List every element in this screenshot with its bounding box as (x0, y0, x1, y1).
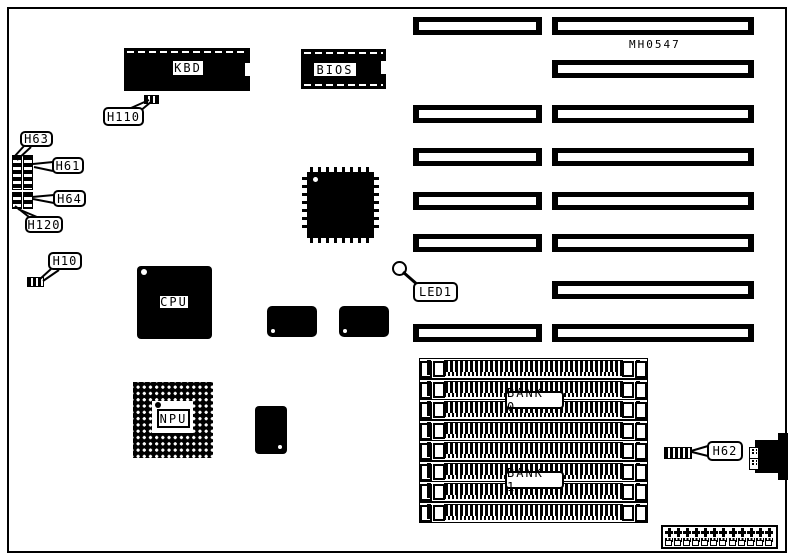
h110-pin-header (144, 95, 159, 104)
isa-slot-left-6 (413, 324, 542, 342)
ic-chip-3 (255, 406, 287, 454)
isa-slot-right-8 (552, 324, 754, 342)
power-pin-8 (729, 528, 738, 546)
isa-slot-right-4 (552, 148, 754, 166)
power-pin-6 (710, 528, 719, 546)
qfp-pin1-dot (313, 177, 318, 182)
simm-socket-1 (419, 358, 648, 379)
board-id-label: MH0547 (629, 38, 681, 51)
callout-h64: H64 (53, 190, 86, 207)
isa-slot-left-2 (413, 105, 542, 123)
power-pin-1 (665, 528, 674, 546)
power-pin-12 (765, 528, 774, 546)
isa-slot-left-4 (413, 192, 542, 210)
callout-h61: H61 (52, 157, 84, 174)
motherboard-diagram: MH0547 KBD BIOS H110 H63 H61 H64 H120 H1… (0, 0, 791, 559)
callout-h120: H120 (25, 216, 63, 233)
keyboard-connector-bracket (778, 433, 788, 480)
power-pin-7 (719, 528, 728, 546)
cpu-pin1-dot (141, 269, 147, 275)
h10-pin-header (27, 277, 44, 287)
npu-pin1-dot (155, 402, 161, 408)
led1-indicator (392, 261, 407, 276)
kbd-chip-notch (245, 63, 250, 76)
power-pin-3 (683, 528, 692, 546)
h62-pin-header (664, 447, 692, 459)
cpu-chip-label: CPU (159, 295, 189, 309)
h120-pin-header (12, 192, 22, 209)
isa-slot-left-1 (413, 17, 542, 35)
bank1-label: BANK 1 (505, 471, 564, 489)
h61-pin-header (23, 155, 33, 190)
isa-slot-right-3 (552, 105, 754, 123)
ic-chip-1 (267, 306, 317, 337)
h63-pin-header (12, 155, 22, 190)
qfp-pins-right (374, 177, 379, 233)
power-pin-2 (674, 528, 683, 546)
callout-h62: H62 (707, 441, 743, 461)
ic-chip-2-pin1-dot (343, 329, 347, 333)
isa-slot-left-3 (413, 148, 542, 166)
bios-chip-dashed-edge-top (304, 52, 383, 54)
npu-chip-label: NPU (157, 409, 190, 428)
callout-led1: LED1 (413, 282, 458, 302)
simm-socket-8 (419, 502, 648, 523)
keyboard-connector-pins-2 (749, 458, 759, 470)
power-pin-10 (747, 528, 756, 546)
power-pin-11 (756, 528, 765, 546)
bios-chip-label: BIOS (313, 62, 357, 77)
callout-h63: H63 (20, 131, 53, 147)
power-pin-5 (701, 528, 710, 546)
isa-slot-left-5 (413, 234, 542, 252)
isa-slot-right-6 (552, 234, 754, 252)
power-connector (661, 525, 778, 549)
power-pin-4 (692, 528, 701, 546)
h64-pin-header (23, 192, 33, 209)
isa-slot-right-2 (552, 60, 754, 78)
callout-h10: H10 (48, 252, 82, 270)
simm-socket-5 (419, 440, 648, 461)
ic-chip-3-pin1-dot (278, 445, 282, 449)
isa-slot-right-5 (552, 192, 754, 210)
bank0-label: BANK 0 (505, 391, 564, 409)
qfp-chip (307, 172, 374, 238)
callout-h110: H110 (103, 107, 144, 126)
kbd-chip-label: KBD (172, 60, 204, 76)
power-pin-9 (738, 528, 747, 546)
ic-chip-1-pin1-dot (271, 329, 275, 333)
qfp-pins-bottom (310, 238, 372, 243)
ic-chip-2 (339, 306, 389, 337)
bios-chip-notch (381, 61, 386, 74)
isa-slot-right-1 (552, 17, 754, 35)
kbd-chip-dashed-edge (127, 51, 247, 53)
bios-chip-dashed-edge-bottom (304, 84, 383, 86)
isa-slot-right-7 (552, 281, 754, 299)
simm-socket-4 (419, 420, 648, 441)
